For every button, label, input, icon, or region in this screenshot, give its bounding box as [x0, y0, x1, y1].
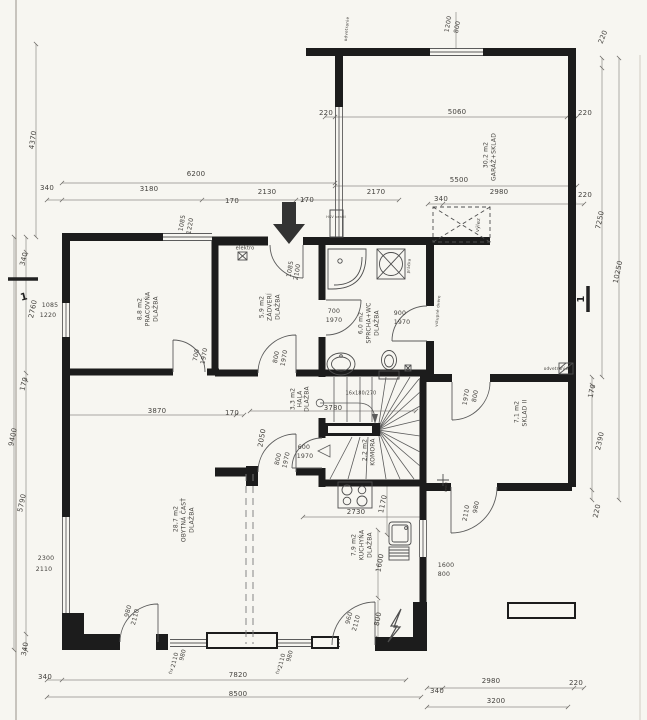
dim-170-right: 170 [587, 383, 598, 398]
door-980-sklad-s: 980 [472, 500, 481, 513]
dim-800-v: 800 [373, 611, 383, 626]
door-2110-sklad-s: 2110 [462, 504, 472, 522]
dim-170-top-1: 170 [225, 197, 239, 205]
ann-odvetranie-top: odvetranie [343, 16, 350, 41]
door-800-sklad-n: 800 [471, 389, 480, 402]
room-pracovna-floor: DLAŽBA [152, 295, 160, 321]
dim-3180: 3180 [140, 185, 159, 193]
dim-340-left-1: 340 [18, 251, 29, 266]
walk-line-arrow [372, 414, 378, 424]
door-700-sprcha: 700 [328, 308, 340, 315]
section-mark-1-left: 1 [19, 291, 29, 303]
corner-block-se-v [413, 602, 427, 651]
window-left-pracovna [63, 303, 70, 337]
fixed-window-2 [312, 637, 338, 648]
room-obytna-name: OBYTNÁ ČASŤ [180, 498, 188, 542]
win-1600-kuchyna: 1600 [438, 562, 455, 569]
room-hala-area: 3,3 m2 [290, 388, 297, 410]
dim-340-bottom-1: 340 [38, 673, 52, 681]
win-1085-left: 1085 [42, 302, 59, 309]
corner-block-sw [62, 613, 120, 650]
room-komora-area: 2,2 m2 [362, 439, 369, 461]
dim-2760: 2760 [27, 299, 39, 319]
dim-3200: 3200 [487, 697, 506, 705]
dim-220-top-right: 220 [597, 29, 610, 45]
win-2110-left: 2110 [36, 566, 53, 573]
dim-3870: 3870 [148, 407, 167, 415]
dim-170-hala: 170 [225, 409, 239, 417]
ceiling-dashed-line [246, 474, 253, 644]
win-980-fix-1: 980 [179, 649, 188, 662]
room-zadveri-name: ZÁDVERÍ [267, 293, 274, 321]
fixed-window-1 [207, 633, 277, 648]
win-1220-left: 1220 [40, 312, 57, 319]
kitchen-sink [389, 522, 411, 560]
labels: 1200800odvetranie2204370220506022030,2 m… [7, 15, 624, 705]
door-1970-sklad-n: 1970 [462, 388, 472, 406]
stair-treads-upper [334, 377, 372, 422]
dim-220-bottom: 220 [569, 679, 583, 687]
dim-220-garage-right: 220 [578, 109, 592, 117]
dim-7250: 7250 [594, 210, 606, 230]
ann-stair-spec: 16x180/270 [346, 391, 377, 397]
door-1970-komora: 1970 [297, 453, 314, 460]
dim-2050: 2050 [256, 428, 267, 448]
shower-drain [338, 259, 342, 263]
dim-340-bottom-2: 340 [430, 687, 444, 695]
dim-2130: 2130 [258, 188, 277, 196]
window-kitchen-east [420, 520, 427, 557]
ann-odvetranie-right: odvetranie [544, 366, 569, 371]
dim-800-top: 800 [453, 20, 462, 33]
ann-pracka: práčka [405, 258, 411, 273]
dim-4370: 4370 [28, 130, 39, 150]
floor-plan-sheet: 1200800odvetranie2204370220506022030,2 m… [0, 0, 647, 720]
win-2300-left: 2300 [38, 555, 55, 562]
dim-2980-bottom: 2980 [482, 677, 501, 685]
room-kuchyna-name: KUCHYŇA [359, 529, 366, 560]
dim-8500: 8500 [229, 690, 248, 698]
room-obytna-floor: DLAŽBA [188, 506, 196, 532]
direction-triangle [318, 445, 330, 457]
room-sklad2-name: SKLAD II [522, 399, 529, 426]
win-980-fix-2: 980 [286, 650, 295, 663]
dim-7820: 7820 [229, 671, 248, 679]
room-kuchyna-area: 7,9 m2 [351, 534, 358, 556]
room-pracovna-area: 8,8 m2 [137, 298, 144, 320]
window-garage-top [430, 49, 483, 56]
door-1970-pracovna: 1970 [200, 347, 210, 365]
door-1970-vstup: 1970 [394, 319, 411, 326]
room-kuchyna-floor: DLAŽBA [366, 531, 374, 557]
door-1970-sprcha: 1970 [326, 317, 343, 324]
windows [63, 49, 484, 647]
dim-6200: 6200 [187, 170, 206, 178]
win-800-kuchyna: 800 [438, 571, 450, 578]
dim-220-right: 220 [592, 503, 603, 518]
dim-10250: 10250 [612, 260, 625, 284]
dim-1600-v: 1600 [374, 553, 385, 573]
room-obytna-area: 28,7 m2 [173, 506, 180, 532]
room-zadveri-area: 5,9 m2 [259, 296, 266, 318]
door-1970-zadveri: 1970 [280, 349, 290, 367]
room-komora-name: KOMORA [370, 438, 377, 466]
room-sprcha-floor: DLAŽBA [373, 309, 381, 335]
dim-170-left: 170 [18, 376, 29, 391]
exterior-step [508, 603, 575, 618]
section-mark-1-right: 1 [576, 295, 587, 302]
window-left-obytna [63, 517, 70, 613]
room-sprcha-name: SPRCHA+WC [366, 302, 373, 343]
dim-340-top-1: 340 [40, 184, 54, 192]
dim-2730: 2730 [347, 508, 366, 516]
door-900-vstup: 900 [394, 310, 406, 317]
room-zadveri-floor: DLAŽBA [274, 293, 282, 319]
entrance-arrow-icon [273, 202, 305, 244]
dim-340-top-2: 340 [434, 195, 448, 203]
dim-5500: 5500 [450, 176, 469, 184]
room-hala-floor: DLAŽBA [303, 385, 311, 411]
room-sprcha-area: 6,0 m2 [358, 312, 365, 334]
room-garaz-name: GARÁŽ+SKLAD [490, 133, 498, 181]
ann-vstupne-dvere: vstupné dvere [434, 295, 442, 327]
dim-2170: 2170 [367, 188, 386, 196]
washing-machine [377, 249, 405, 279]
ann-elektro: elektro [236, 246, 255, 252]
dim-220-garage-left: 220 [319, 109, 333, 117]
dim-340-left-2: 340 [20, 641, 30, 656]
elektro-box [238, 252, 247, 260]
win-1220-top: 1220 [186, 217, 196, 235]
ann-hsv-ventil: HSV ventil [326, 215, 346, 219]
dim-2390: 2390 [594, 431, 606, 451]
dim-9400: 9400 [7, 427, 19, 447]
room-sklad2-area: 7,1 m2 [514, 401, 521, 423]
dim-5060: 5060 [448, 108, 467, 116]
stair-fan [378, 377, 420, 479]
door-600-komora: 600 [298, 444, 310, 451]
dim-3780: 3780 [324, 404, 343, 412]
dim-220-top-3: 220 [578, 191, 592, 199]
room-pracovna-name: PRACOVŇA [145, 291, 152, 326]
dim-1200-top: 1200 [444, 15, 454, 33]
room-hala-name: HALA [297, 390, 304, 408]
room-garaz-area: 30,2 m2 [483, 142, 490, 168]
floor-plan-drawing: 1200800odvetranie2204370220506022030,2 m… [0, 0, 647, 720]
ann-vylez: výlez [474, 218, 482, 233]
dim-2980-top: 2980 [490, 188, 509, 196]
dim-170-top-2: 170 [300, 196, 314, 204]
